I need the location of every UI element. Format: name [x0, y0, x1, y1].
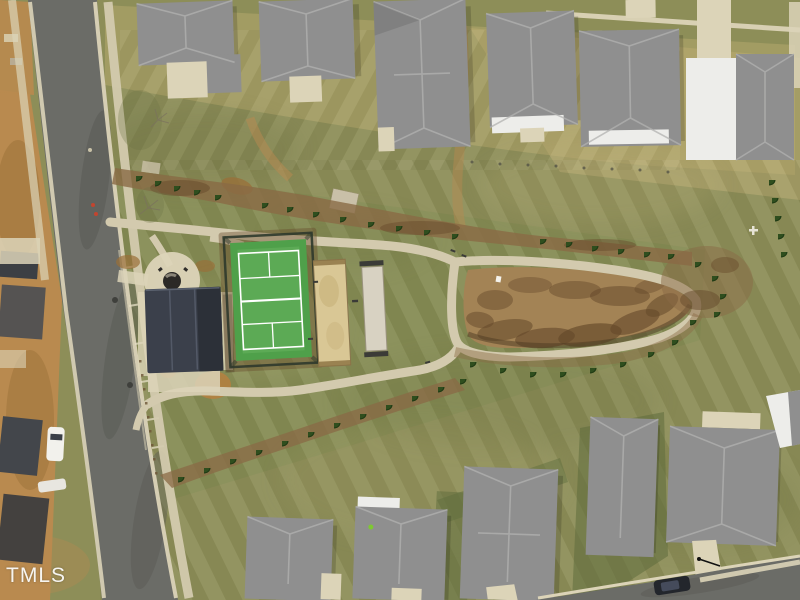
house-bottom-4	[586, 417, 661, 557]
aerial-photo: TMLS	[0, 0, 800, 600]
house-bottom-1	[245, 517, 344, 600]
house-top-3	[373, 0, 475, 152]
patio-pad	[167, 61, 208, 98]
house-top-4	[486, 10, 582, 143]
manhole	[127, 382, 133, 388]
utility-marker	[94, 212, 98, 216]
driveway-apron	[0, 238, 40, 264]
porch-pad	[520, 128, 544, 143]
house-bottom-2	[352, 496, 452, 600]
manhole	[112, 297, 118, 303]
house-wrap-white	[686, 58, 738, 160]
birdhouse	[496, 276, 502, 283]
driveway	[391, 588, 421, 600]
patio-pad	[321, 573, 342, 600]
bocce-court	[313, 259, 351, 367]
driveway	[625, 0, 655, 18]
aerial-scene	[0, 0, 800, 600]
patio-pad	[289, 76, 322, 103]
tmls-watermark: TMLS	[6, 564, 66, 588]
pickleball-court	[218, 228, 323, 373]
horseshoe-pit	[362, 266, 387, 351]
unfinished-roof	[0, 416, 43, 476]
driveway	[697, 0, 731, 58]
rear-patio	[702, 411, 761, 429]
house-bottom-3	[460, 466, 564, 600]
porch-pad	[378, 127, 395, 152]
utility-marker	[91, 203, 95, 207]
white-truck	[46, 427, 65, 462]
